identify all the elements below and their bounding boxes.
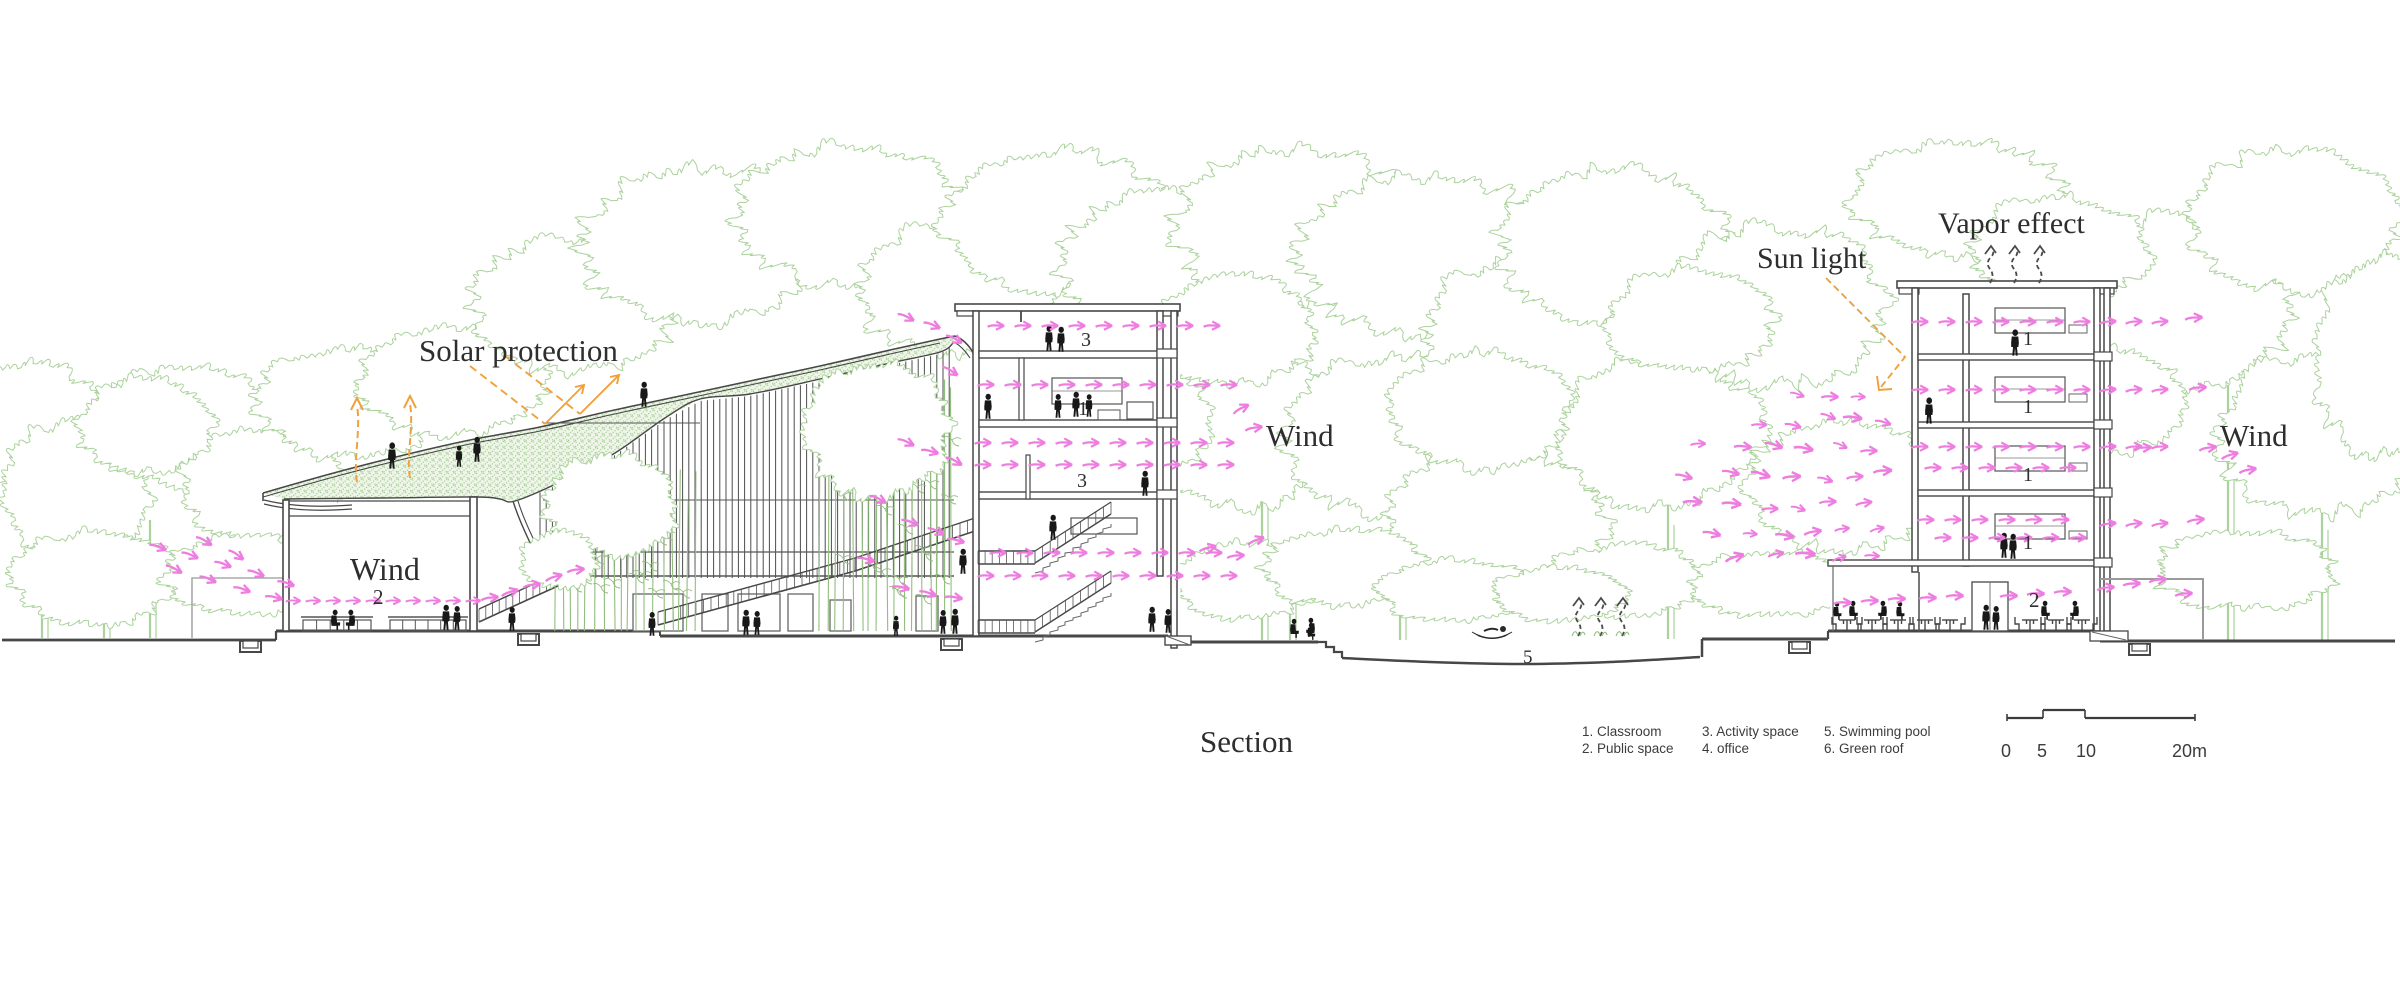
svg-text:3. Activity space: 3. Activity space bbox=[1702, 724, 1799, 739]
svg-text:Sun light: Sun light bbox=[1757, 242, 1867, 275]
svg-text:6. Green roof: 6. Green roof bbox=[1824, 741, 1904, 756]
svg-text:2: 2 bbox=[373, 585, 384, 609]
svg-text:0: 0 bbox=[2001, 741, 2011, 761]
svg-text:Wind: Wind bbox=[350, 551, 420, 587]
svg-text:1: 1 bbox=[2023, 328, 2033, 350]
svg-text:2: 2 bbox=[2029, 588, 2040, 612]
svg-text:1. Classroom: 1. Classroom bbox=[1582, 724, 1662, 739]
svg-text:4. office: 4. office bbox=[1702, 741, 1749, 756]
svg-text:5: 5 bbox=[1523, 647, 1533, 668]
svg-text:20m: 20m bbox=[2172, 741, 2207, 761]
svg-text:Section: Section bbox=[1200, 724, 1293, 759]
svg-text:Wind: Wind bbox=[2220, 418, 2288, 453]
svg-text:3: 3 bbox=[1077, 470, 1087, 492]
svg-text:1: 1 bbox=[2023, 464, 2033, 486]
svg-text:Wind: Wind bbox=[1266, 418, 1334, 453]
svg-text:5: 5 bbox=[2037, 741, 2047, 761]
svg-text:1: 1 bbox=[2023, 532, 2033, 554]
svg-text:10: 10 bbox=[2076, 741, 2096, 761]
svg-text:1: 1 bbox=[2023, 396, 2033, 418]
svg-text:2. Public space: 2. Public space bbox=[1582, 741, 1674, 756]
svg-text:3: 3 bbox=[1081, 329, 1091, 351]
svg-text:Vapor effect: Vapor effect bbox=[1938, 207, 2086, 240]
svg-text:5. Swimming pool: 5. Swimming pool bbox=[1824, 724, 1931, 739]
svg-text:1: 1 bbox=[1078, 398, 1088, 420]
svg-text:Solar protection: Solar protection bbox=[419, 333, 618, 368]
